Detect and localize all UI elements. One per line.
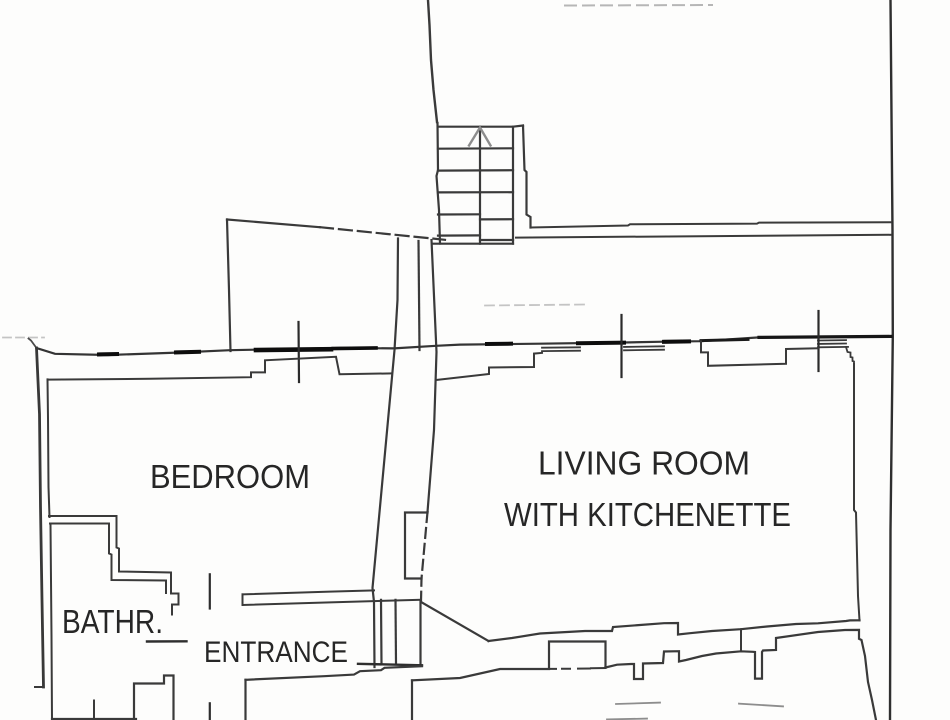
svg-text:BEDROOM: BEDROOM (150, 458, 310, 495)
svg-text:BATHR.: BATHR. (62, 603, 163, 640)
svg-text:ENTRANCE: ENTRANCE (204, 636, 348, 669)
svg-text:WITH KITCHENETTE: WITH KITCHENETTE (504, 496, 791, 533)
svg-text:LIVING ROOM: LIVING ROOM (538, 445, 750, 482)
